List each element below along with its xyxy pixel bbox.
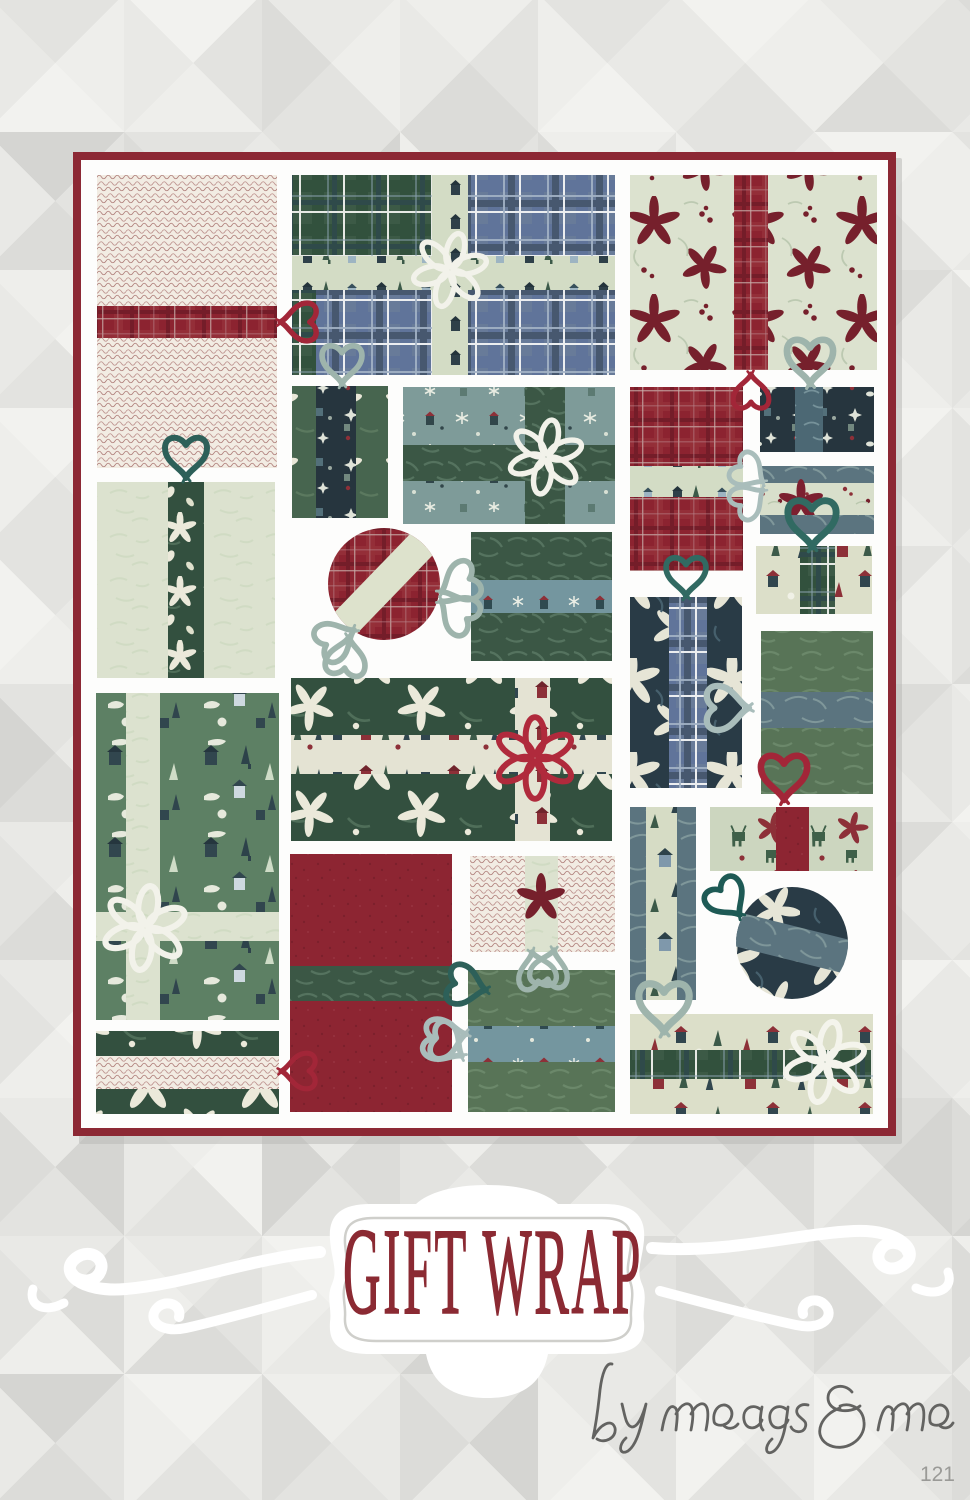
svg-text:GIFT WRAP: GIFT WRAP [343,1202,643,1340]
svg-text:121: 121 [920,1463,955,1486]
